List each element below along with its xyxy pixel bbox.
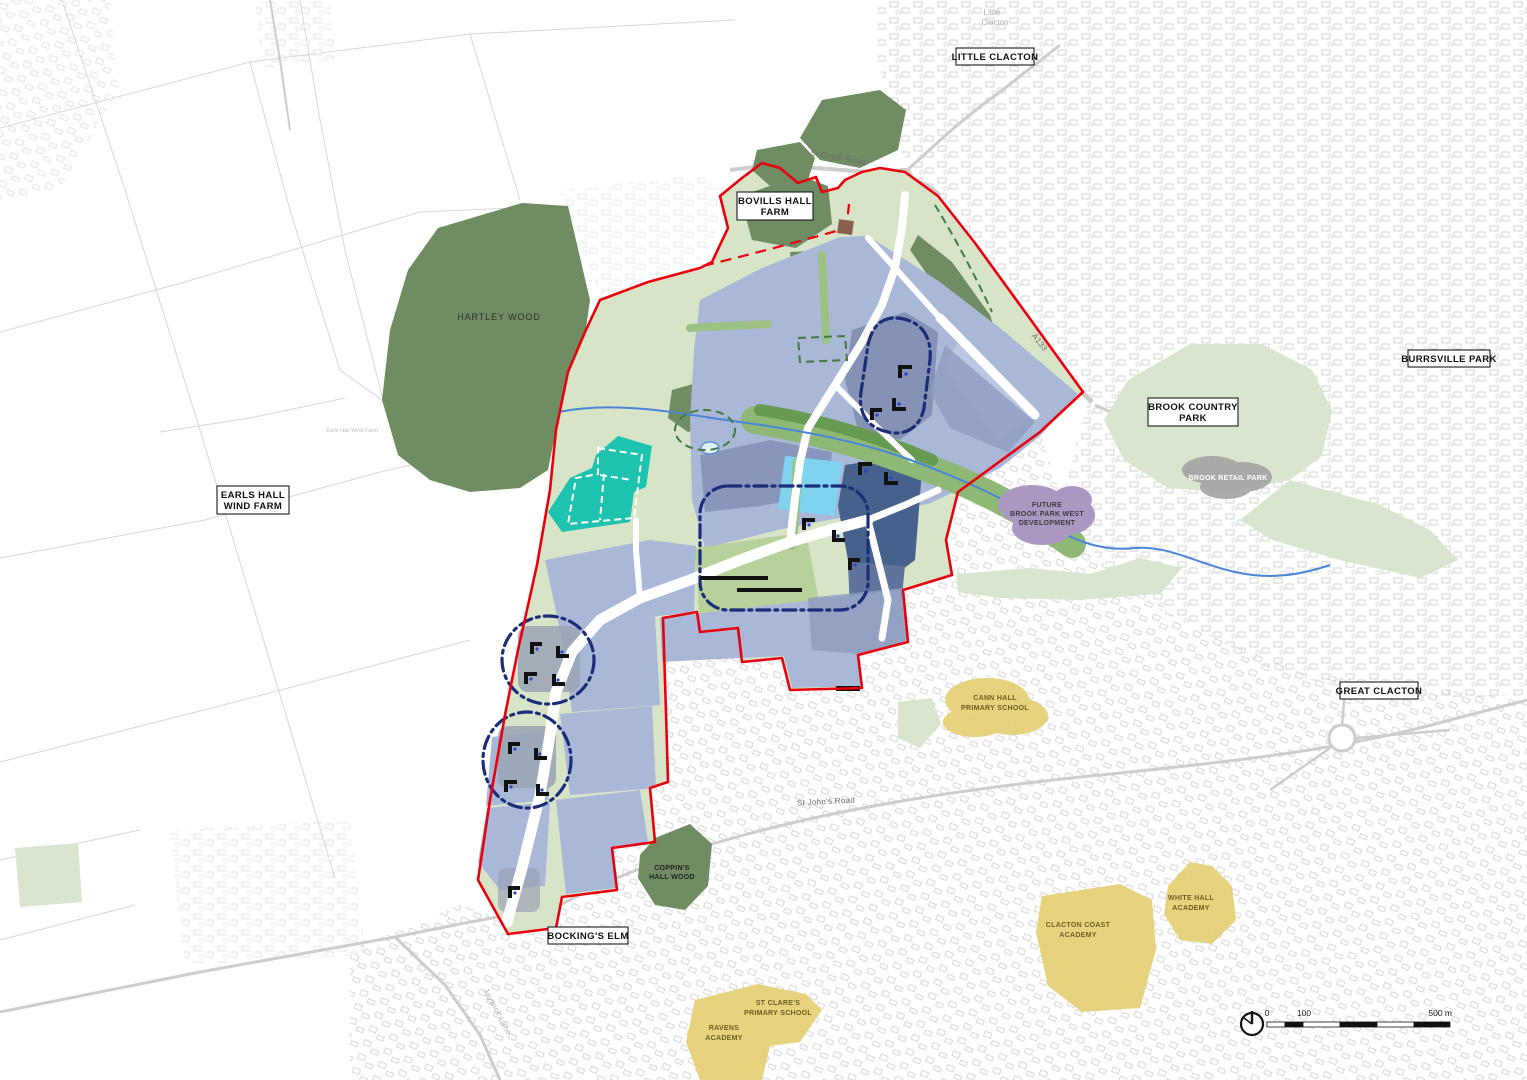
label-brook-retail-park: BROOK RETAIL PARK xyxy=(1189,475,1268,482)
svg-text:RAVENS: RAVENS xyxy=(709,1025,739,1032)
svg-text:BROOK COUNTRY: BROOK COUNTRY xyxy=(1148,402,1238,413)
label-burrsville-park: BURRSVILLE PARK xyxy=(1401,350,1497,367)
scalebar-zero: 0 xyxy=(1265,1008,1270,1018)
svg-text:ACADEMY: ACADEMY xyxy=(1059,932,1097,939)
svg-text:FARM: FARM xyxy=(761,207,790,218)
label-great-clacton: GREAT CLACTON xyxy=(1336,682,1423,699)
map-canvas: LITTLE CLACTON BOVILLS HALL FARM EARLS H… xyxy=(0,0,1527,1080)
label-earls-hall-wind-farm: EARLS HALL WIND FARM xyxy=(217,486,289,514)
svg-text:LITTLE CLACTON: LITTLE CLACTON xyxy=(952,52,1039,63)
svg-text:WIND FARM: WIND FARM xyxy=(224,501,282,512)
svg-text:PRIMARY SCHOOL: PRIMARY SCHOOL xyxy=(961,705,1029,712)
svg-text:BOCKING'S ELM: BOCKING'S ELM xyxy=(547,931,628,942)
svg-text:WHITE HALL: WHITE HALL xyxy=(1168,895,1215,902)
masterplan-map: LITTLE CLACTON BOVILLS HALL FARM EARLS H… xyxy=(0,0,1527,1080)
scalebar-segments xyxy=(1267,1022,1450,1027)
svg-text:Clacton: Clacton xyxy=(981,18,1008,27)
svg-text:ACADEMY: ACADEMY xyxy=(1172,905,1210,912)
label-brook-country-park: BROOK COUNTRY PARK xyxy=(1148,398,1238,426)
label-hartley-wood: HARTLEY WOOD xyxy=(457,312,540,322)
scalebar-hundred: 100 xyxy=(1297,1008,1311,1018)
label-earls-hall-faint: Earls Hall Wind Farm xyxy=(326,428,378,434)
svg-text:CLACTON COAST: CLACTON COAST xyxy=(1046,922,1111,929)
label-bovills-hall-farm: BOVILLS HALL FARM xyxy=(737,192,813,220)
label-little-clacton-faint: Little xyxy=(984,8,1001,17)
svg-text:FUTURE: FUTURE xyxy=(1032,502,1062,509)
label-little-clacton: LITTLE CLACTON xyxy=(952,48,1039,65)
svg-text:PRIMARY SCHOOL: PRIMARY SCHOOL xyxy=(744,1010,812,1017)
label-bockings-elm: BOCKING'S ELM xyxy=(547,927,628,944)
svg-text:CANN HALL: CANN HALL xyxy=(973,695,1017,702)
svg-text:BROOK PARK WEST: BROOK PARK WEST xyxy=(1010,511,1084,518)
svg-text:PARK: PARK xyxy=(1179,413,1207,424)
svg-text:GREAT CLACTON: GREAT CLACTON xyxy=(1336,686,1423,697)
scalebar-fivehundred: 500 m xyxy=(1428,1008,1452,1018)
svg-text:ACADEMY: ACADEMY xyxy=(705,1035,743,1042)
svg-text:BURRSVILLE PARK: BURRSVILLE PARK xyxy=(1401,354,1497,365)
svg-text:DEVELOPMENT: DEVELOPMENT xyxy=(1019,520,1076,527)
svg-text:ST CLARE'S: ST CLARE'S xyxy=(756,1000,800,1007)
brown-building-marker xyxy=(837,219,854,235)
svg-text:EARLS HALL: EARLS HALL xyxy=(221,490,285,501)
svg-text:HALL WOOD: HALL WOOD xyxy=(649,874,695,881)
svg-text:BOVILLS HALL: BOVILLS HALL xyxy=(738,196,812,207)
label-coppins-hall-wood: COPPIN'S xyxy=(654,865,690,872)
